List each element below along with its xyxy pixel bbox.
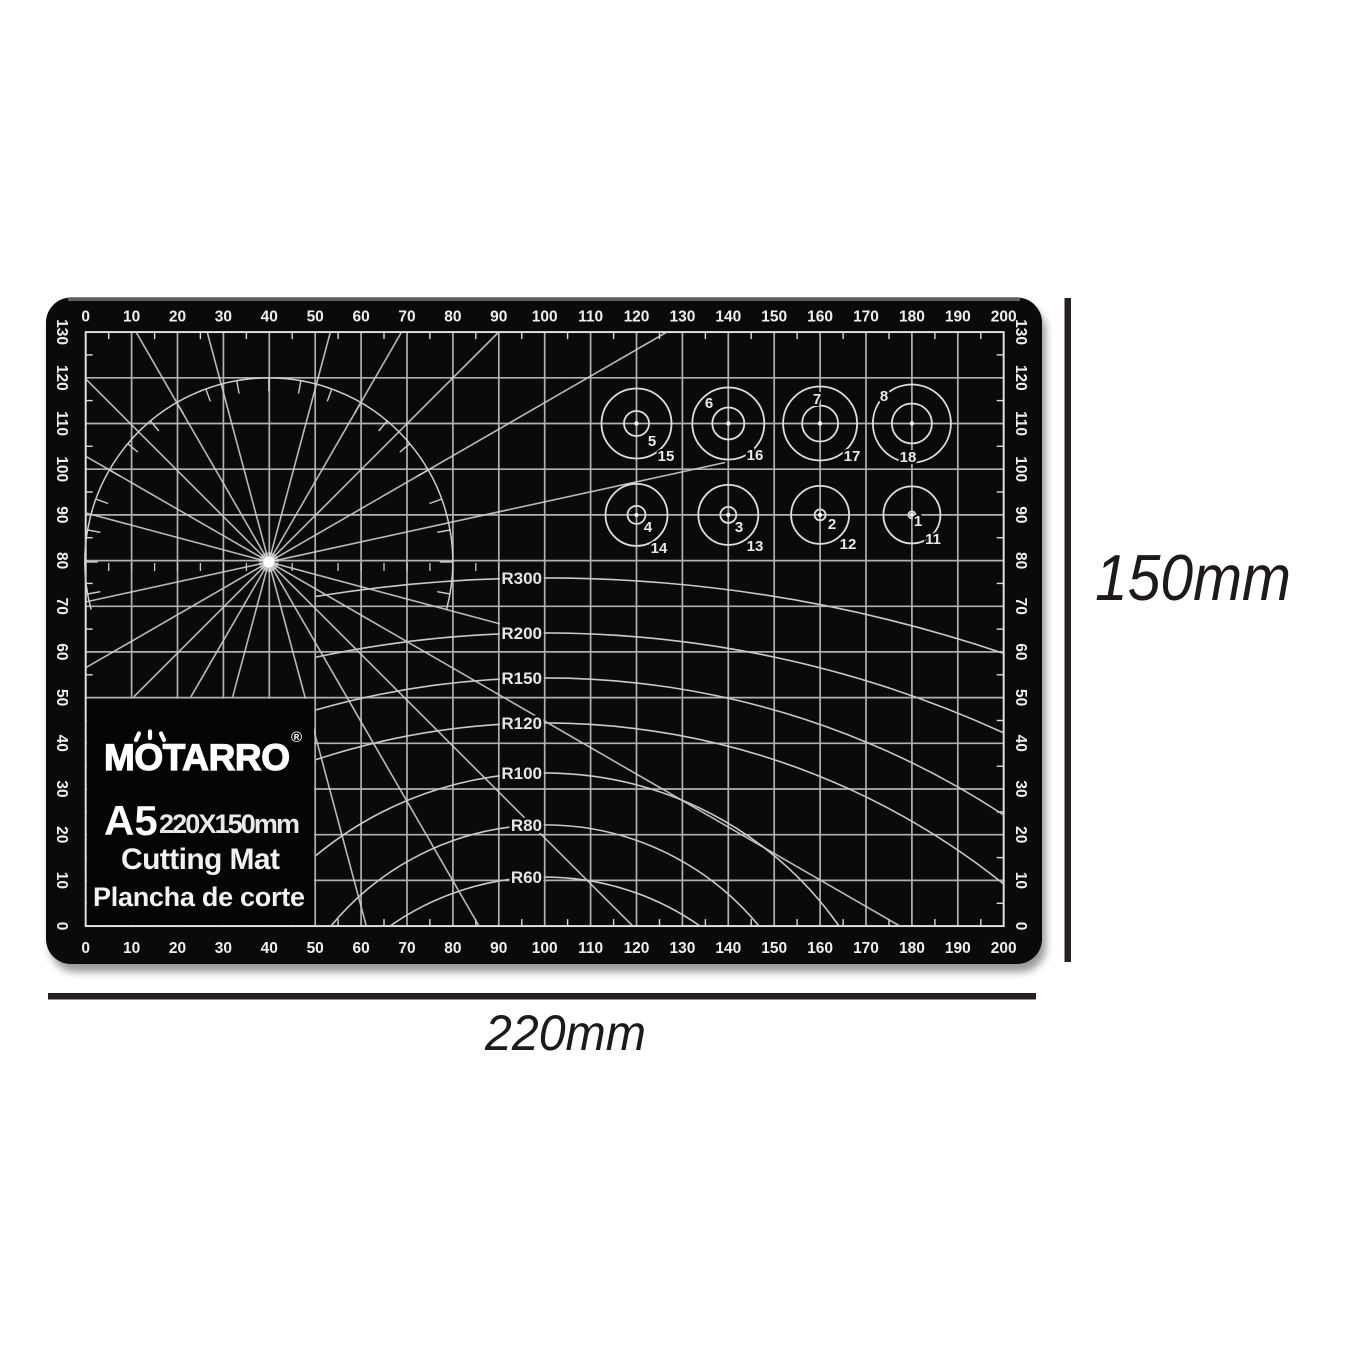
svg-text:20: 20 <box>169 309 186 326</box>
svg-text:160: 160 <box>807 940 833 957</box>
svg-text:190: 190 <box>945 940 971 957</box>
svg-text:R120: R120 <box>501 714 542 733</box>
svg-text:6: 6 <box>705 395 713 412</box>
svg-text:170: 170 <box>853 309 879 326</box>
svg-text:40: 40 <box>261 940 278 957</box>
svg-text:100: 100 <box>53 456 70 482</box>
svg-text:90: 90 <box>53 506 70 523</box>
svg-text:40: 40 <box>53 735 70 752</box>
svg-text:40: 40 <box>1012 735 1029 752</box>
svg-text:30: 30 <box>215 940 232 957</box>
svg-text:20: 20 <box>169 940 186 957</box>
svg-text:13: 13 <box>747 538 764 555</box>
svg-text:90: 90 <box>490 309 507 326</box>
svg-text:100: 100 <box>532 940 558 957</box>
svg-text:90: 90 <box>1012 506 1029 523</box>
svg-text:180: 180 <box>899 940 925 957</box>
svg-text:100: 100 <box>532 309 558 326</box>
svg-text:14: 14 <box>651 540 668 557</box>
svg-text:190: 190 <box>945 309 971 326</box>
svg-text:100: 100 <box>1012 456 1029 482</box>
svg-text:110: 110 <box>578 309 603 326</box>
svg-text:R300: R300 <box>501 569 542 588</box>
svg-text:4: 4 <box>644 519 653 536</box>
svg-text:90: 90 <box>490 940 507 957</box>
svg-text:R60: R60 <box>511 868 542 887</box>
svg-text:220X150mm: 220X150mm <box>159 809 300 839</box>
svg-text:0: 0 <box>53 922 70 931</box>
svg-text:110: 110 <box>53 411 70 436</box>
svg-text:0: 0 <box>81 309 90 326</box>
svg-text:R100: R100 <box>501 764 542 783</box>
svg-text:Cutting Mat: Cutting Mat <box>121 843 280 876</box>
svg-text:7: 7 <box>813 391 821 408</box>
svg-text:150: 150 <box>761 309 787 326</box>
svg-text:130: 130 <box>53 319 70 345</box>
svg-text:R150: R150 <box>501 669 542 688</box>
svg-text:2: 2 <box>828 516 836 533</box>
svg-text:130: 130 <box>669 309 695 326</box>
svg-text:R80: R80 <box>511 816 542 835</box>
svg-text:80: 80 <box>53 552 70 569</box>
svg-text:120: 120 <box>624 309 650 326</box>
svg-text:R200: R200 <box>501 624 542 643</box>
svg-text:30: 30 <box>1012 780 1029 797</box>
svg-text:130: 130 <box>669 940 695 957</box>
svg-text:10: 10 <box>123 940 140 957</box>
svg-text:15: 15 <box>658 448 675 465</box>
svg-text:170: 170 <box>853 940 879 957</box>
svg-text:180: 180 <box>899 309 925 326</box>
svg-text:0: 0 <box>1012 922 1029 931</box>
svg-text:80: 80 <box>444 940 461 957</box>
svg-text:80: 80 <box>444 309 461 326</box>
svg-text:50: 50 <box>53 689 70 706</box>
svg-text:120: 120 <box>1012 365 1029 391</box>
svg-text:50: 50 <box>1012 689 1029 706</box>
svg-text:200: 200 <box>991 940 1017 957</box>
svg-text:8: 8 <box>880 388 888 405</box>
svg-text:130: 130 <box>1012 319 1029 345</box>
svg-text:110: 110 <box>1012 411 1029 436</box>
svg-text:40: 40 <box>261 309 278 326</box>
svg-text:A5: A5 <box>104 797 158 844</box>
svg-text:5: 5 <box>648 433 656 450</box>
svg-text:50: 50 <box>307 940 324 957</box>
svg-text:140: 140 <box>715 940 741 957</box>
svg-text:70: 70 <box>1012 598 1029 615</box>
svg-text:20: 20 <box>1012 826 1029 843</box>
svg-text:3: 3 <box>735 519 743 536</box>
svg-text:30: 30 <box>53 780 70 797</box>
svg-text:120: 120 <box>53 365 70 391</box>
svg-text:0: 0 <box>81 940 90 957</box>
svg-text:60: 60 <box>53 643 70 660</box>
svg-text:220mm: 220mm <box>484 1005 646 1061</box>
svg-text:50: 50 <box>307 309 324 326</box>
svg-text:110: 110 <box>578 940 603 957</box>
svg-text:12: 12 <box>840 536 857 553</box>
svg-text:120: 120 <box>624 940 650 957</box>
svg-text:60: 60 <box>352 309 369 326</box>
svg-text:150: 150 <box>761 940 787 957</box>
svg-text:70: 70 <box>53 598 70 615</box>
svg-text:®: ® <box>291 729 302 746</box>
svg-text:18: 18 <box>900 449 917 466</box>
svg-text:140: 140 <box>715 309 741 326</box>
svg-text:60: 60 <box>1012 643 1029 660</box>
svg-text:70: 70 <box>398 940 415 957</box>
svg-text:Plancha de corte: Plancha de corte <box>93 882 305 912</box>
svg-text:30: 30 <box>215 309 232 326</box>
svg-text:17: 17 <box>844 448 861 465</box>
svg-text:20: 20 <box>53 826 70 843</box>
svg-text:MOTARRO: MOTARRO <box>104 737 290 778</box>
svg-text:150mm: 150mm <box>1095 541 1291 614</box>
svg-text:70: 70 <box>398 309 415 326</box>
svg-text:11: 11 <box>925 531 941 548</box>
svg-text:160: 160 <box>807 309 833 326</box>
svg-text:10: 10 <box>1012 872 1029 889</box>
svg-text:1: 1 <box>914 513 922 530</box>
svg-text:16: 16 <box>747 447 764 464</box>
svg-text:10: 10 <box>123 309 140 326</box>
svg-text:60: 60 <box>352 940 369 957</box>
svg-text:80: 80 <box>1012 552 1029 569</box>
svg-text:10: 10 <box>53 872 70 889</box>
